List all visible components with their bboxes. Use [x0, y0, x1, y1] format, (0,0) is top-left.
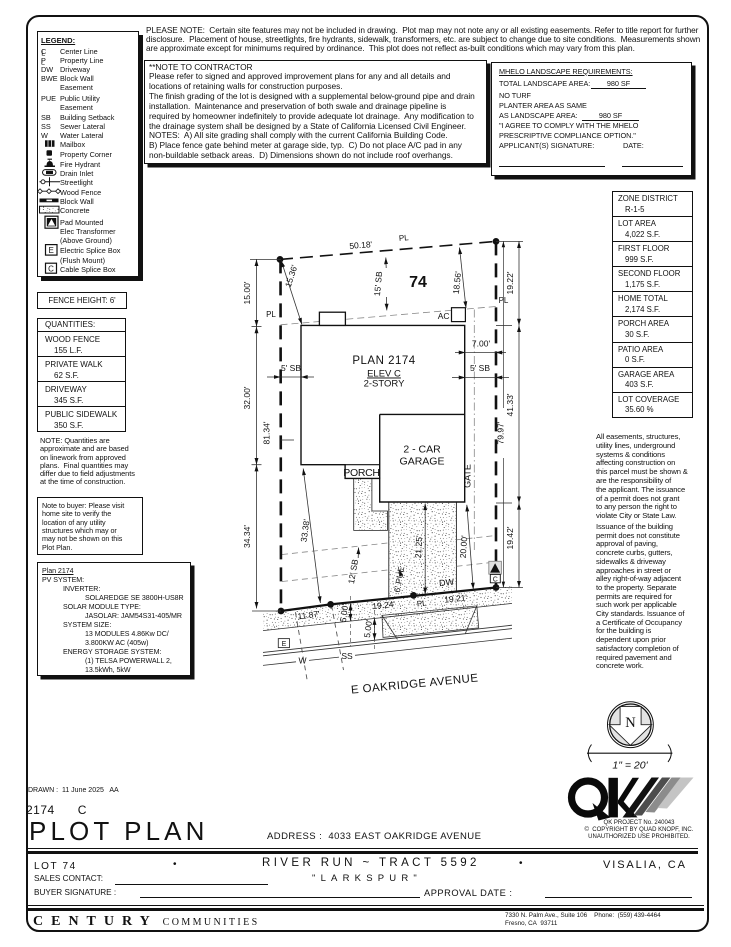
svg-text:GARAGE: GARAGE — [400, 456, 445, 468]
svg-text:20.00': 20.00' — [458, 535, 470, 559]
svg-text:PL: PL — [399, 233, 410, 243]
svg-text:34.34': 34.34' — [242, 525, 252, 548]
svg-text:15' SB: 15' SB — [372, 271, 384, 297]
svg-text:79.97': 79.97' — [495, 421, 505, 444]
svg-text:5.00': 5.00' — [362, 619, 374, 639]
svg-text:PL: PL — [416, 598, 427, 608]
svg-text:1" = 20': 1" = 20' — [612, 760, 648, 772]
svg-text:2 - CAR: 2 - CAR — [403, 444, 441, 456]
svg-text:15.36': 15.36' — [283, 263, 300, 288]
svg-text:PLAN 2174: PLAN 2174 — [352, 355, 415, 367]
svg-text:GATE: GATE — [463, 464, 473, 488]
svg-text:C: C — [493, 576, 498, 583]
svg-text:15.00': 15.00' — [242, 281, 252, 304]
svg-text:7.00': 7.00' — [472, 339, 491, 349]
svg-text:19.22': 19.22' — [505, 271, 515, 294]
svg-text:E: E — [49, 246, 54, 255]
svg-text:32.00': 32.00' — [242, 386, 252, 409]
svg-text:AC: AC — [438, 311, 450, 321]
svg-text:E OAKRIDGE AVENUE: E OAKRIDGE AVENUE — [350, 672, 478, 696]
svg-text:50.18': 50.18' — [349, 239, 373, 251]
svg-text:DW: DW — [439, 577, 455, 589]
svg-text:PL: PL — [266, 310, 276, 319]
svg-text:12' SB: 12' SB — [346, 558, 360, 584]
svg-text:41.33': 41.33' — [505, 393, 515, 416]
svg-text:2-STORY: 2-STORY — [364, 379, 405, 390]
svg-text:C: C — [48, 264, 54, 273]
svg-text:PORCH: PORCH — [343, 467, 379, 479]
svg-text:18.56': 18.56' — [451, 270, 463, 294]
svg-text:21.25': 21.25' — [413, 535, 424, 559]
svg-text:5' SB: 5' SB — [281, 363, 301, 373]
svg-text:74: 74 — [409, 274, 427, 291]
svg-text:81.34': 81.34' — [262, 421, 272, 444]
svg-text:33.38': 33.38' — [298, 518, 311, 542]
svg-text:19.42': 19.42' — [505, 526, 515, 549]
svg-text:E: E — [282, 641, 287, 648]
svg-text:5' SB: 5' SB — [470, 363, 490, 373]
svg-text:PL: PL — [499, 296, 509, 305]
svg-text:SS: SS — [341, 651, 353, 661]
svg-text:W: W — [298, 656, 306, 666]
svg-text:N: N — [625, 715, 636, 731]
